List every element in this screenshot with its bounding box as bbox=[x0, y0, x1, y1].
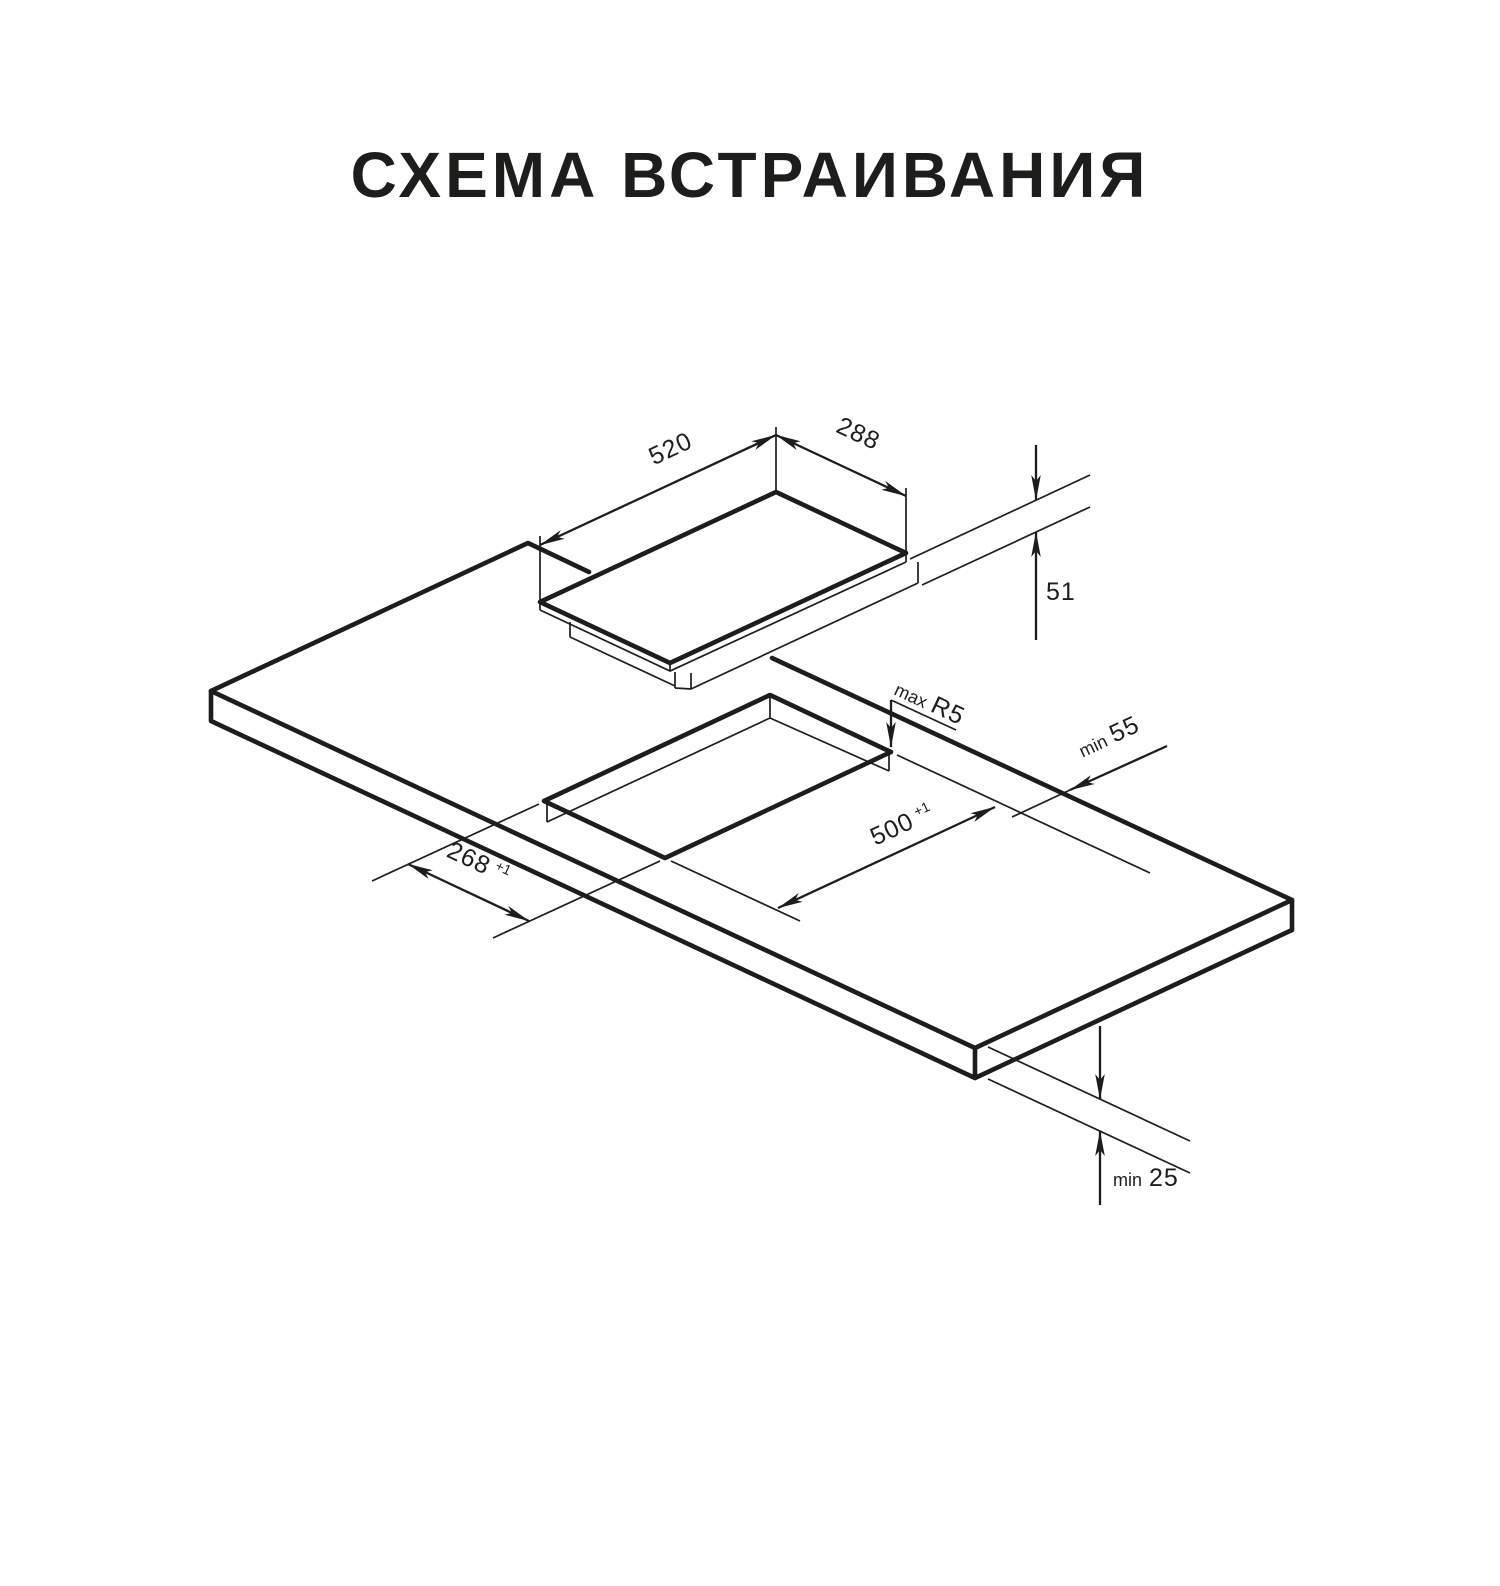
hob-glass-rim bbox=[540, 553, 906, 671]
dim-288-label: 288 bbox=[832, 412, 884, 456]
dim-25-reference-lines bbox=[988, 1047, 1190, 1173]
dim-corner-radius: maxR5 bbox=[890, 674, 969, 747]
cutout-outline bbox=[544, 695, 891, 858]
dim-hob-width: 520 bbox=[540, 427, 776, 600]
installation-diagram: СХЕМА ВСТРАИВАНИЯ bbox=[0, 0, 1500, 1586]
dim-51-label: 51 bbox=[1046, 578, 1076, 606]
cutout-depth-lines bbox=[547, 697, 889, 822]
dim-500-label: 500+1 bbox=[866, 798, 938, 851]
dim-bottom-clearance: min25 bbox=[988, 1026, 1190, 1205]
dim-520-label: 520 bbox=[644, 427, 696, 471]
dim-hob-height: 51 bbox=[910, 445, 1090, 640]
dim-r5-label: maxR5 bbox=[890, 674, 969, 731]
dim-cutout-width: 268+1 bbox=[372, 804, 660, 938]
hob bbox=[540, 492, 918, 689]
dim-cutout-length: 500+1 bbox=[671, 798, 995, 921]
hob-glass-outline bbox=[540, 492, 906, 663]
dim-51-reference-lines bbox=[910, 475, 1090, 585]
countertop-back-left-edges bbox=[211, 543, 589, 691]
dim-hob-depth: 288 bbox=[776, 412, 906, 551]
dim-500-extension-line bbox=[671, 861, 800, 921]
countertop-cutout bbox=[544, 695, 891, 858]
dim-268-extension-lines bbox=[372, 804, 660, 938]
dim-25-label: min25 bbox=[1113, 1164, 1179, 1192]
countertop-bottom-edges bbox=[211, 691, 1292, 1078]
dim-55-label: min55 bbox=[1073, 710, 1144, 763]
dim-288-line bbox=[776, 435, 906, 496]
dim-55-tail bbox=[1012, 790, 1070, 817]
page: СХЕМА ВСТРАИВАНИЯ bbox=[0, 0, 1500, 1586]
page-title: СХЕМА ВСТРАИВАНИЯ bbox=[351, 139, 1150, 211]
